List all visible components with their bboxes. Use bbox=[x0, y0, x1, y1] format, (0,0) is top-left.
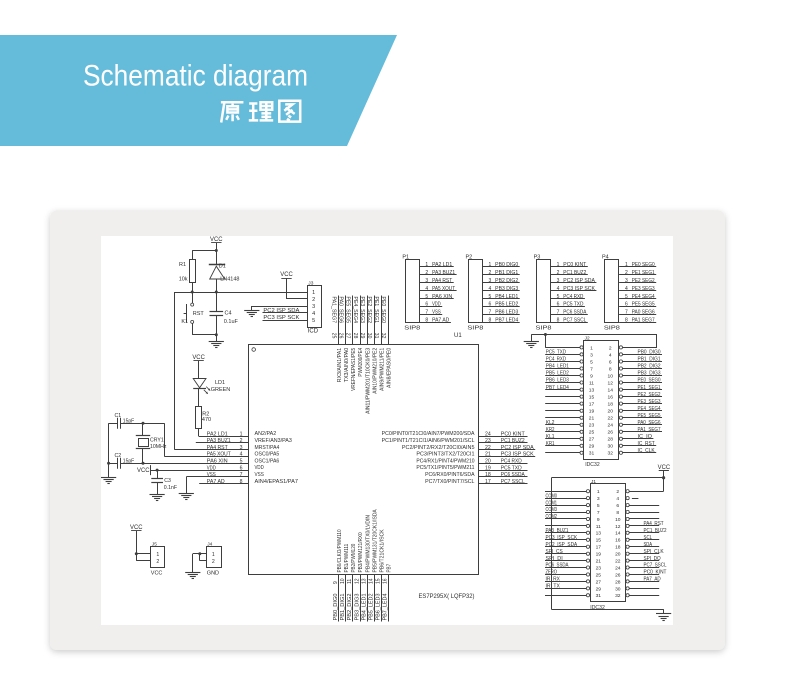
svg-text:8: 8 bbox=[625, 318, 628, 324]
svg-text:1: 1 bbox=[625, 262, 628, 268]
svg-text:5: 5 bbox=[489, 294, 492, 300]
svg-text:PC5 TXD: PC5 TXD bbox=[501, 465, 522, 471]
svg-text:3: 3 bbox=[625, 278, 628, 284]
svg-text:23: 23 bbox=[485, 438, 491, 444]
svg-text:VCC: VCC bbox=[280, 271, 293, 278]
svg-text:PC5/TX1/PINT5/PWM211: PC5/TX1/PINT5/PWM211 bbox=[416, 465, 474, 471]
svg-text:PC3 ISP SCK: PC3 ISP SCK bbox=[501, 452, 534, 458]
svg-text:4: 4 bbox=[425, 286, 428, 292]
svg-text:2: 2 bbox=[609, 345, 612, 351]
svg-text:AIN8/EPAS0/PE0: AIN8/EPAS0/PE0 bbox=[387, 348, 393, 388]
svg-text:23: 23 bbox=[596, 565, 602, 571]
svg-text:PE0_SEG0: PE0_SEG0 bbox=[638, 378, 661, 384]
svg-text:28: 28 bbox=[615, 579, 621, 585]
svg-text:LD1: LD1 bbox=[215, 380, 225, 386]
svg-text:5: 5 bbox=[625, 294, 628, 300]
svg-text:25: 25 bbox=[589, 430, 595, 436]
svg-text:29: 29 bbox=[589, 444, 595, 450]
svg-text:32: 32 bbox=[380, 333, 386, 339]
svg-text:AIN4/EPAS1/PA7: AIN4/EPAS1/PA7 bbox=[255, 479, 299, 485]
svg-text:7: 7 bbox=[597, 510, 600, 516]
svg-text:OSC0/PA5: OSC0/PA5 bbox=[255, 452, 280, 458]
svg-text:PC2_ISP_SDA: PC2_ISP_SDA bbox=[546, 542, 578, 548]
svg-text:25: 25 bbox=[331, 333, 337, 339]
svg-text:P3: P3 bbox=[534, 255, 541, 261]
svg-text:2: 2 bbox=[557, 270, 560, 276]
svg-text:12: 12 bbox=[615, 524, 621, 530]
svg-text:7: 7 bbox=[625, 310, 628, 316]
svg-text:PC1/PINT1/T21CI1/AIN6/PWM201/S: PC1/PINT1/T21CI1/AIN6/PWM201/SCL bbox=[382, 438, 475, 444]
svg-text:J2: J2 bbox=[585, 335, 590, 341]
svg-text:8: 8 bbox=[557, 318, 560, 324]
svg-text:PE0_SEG0: PE0_SEG0 bbox=[380, 297, 386, 324]
svg-text:PA3 BUZ1: PA3 BUZ1 bbox=[207, 438, 231, 444]
svg-text:18: 18 bbox=[607, 402, 613, 408]
svg-text:5: 5 bbox=[597, 503, 600, 509]
svg-text:7: 7 bbox=[240, 472, 243, 478]
svg-text:19: 19 bbox=[589, 409, 595, 415]
svg-text:22: 22 bbox=[607, 416, 613, 422]
svg-text:PA7_AD: PA7_AD bbox=[644, 577, 662, 583]
svg-text:PB0_DIG0: PB0_DIG0 bbox=[333, 593, 339, 620]
svg-text:VSS: VSS bbox=[432, 310, 441, 316]
svg-text:3: 3 bbox=[312, 304, 315, 310]
svg-text:10: 10 bbox=[607, 373, 613, 379]
svg-text:6: 6 bbox=[489, 302, 492, 308]
svg-text:C2: C2 bbox=[115, 453, 122, 459]
svg-text:22: 22 bbox=[615, 559, 621, 565]
svg-text:2: 2 bbox=[616, 489, 619, 495]
svg-text:1: 1 bbox=[597, 489, 600, 495]
svg-text:4: 4 bbox=[240, 452, 243, 458]
svg-text:PB3 DIG3: PB3 DIG3 bbox=[495, 286, 518, 292]
svg-text:19: 19 bbox=[596, 552, 602, 558]
svg-text:6: 6 bbox=[625, 302, 628, 308]
svg-text:8: 8 bbox=[609, 366, 612, 372]
svg-text:PB5/PWM131/T20CK1/ISDA: PB5/PWM131/T20CK1/ISDA bbox=[372, 509, 378, 573]
svg-text:26: 26 bbox=[615, 572, 621, 578]
svg-text:15: 15 bbox=[589, 395, 595, 401]
svg-text:IR_TX: IR_TX bbox=[546, 584, 561, 590]
svg-text:VREF/AN3/PA3: VREF/AN3/PA3 bbox=[255, 438, 292, 444]
svg-text:PC3/PINT3/TX2/T20CI1: PC3/PINT3/TX2/T20CI1 bbox=[416, 452, 474, 458]
svg-text:PC2 ISP SDA: PC2 ISP SDA bbox=[263, 308, 299, 314]
svg-text:CRY1: CRY1 bbox=[150, 437, 164, 443]
svg-text:470: 470 bbox=[202, 417, 211, 423]
svg-text:3: 3 bbox=[489, 278, 492, 284]
svg-text:4: 4 bbox=[489, 286, 492, 292]
svg-text:30: 30 bbox=[366, 333, 372, 339]
svg-text:24: 24 bbox=[485, 431, 491, 437]
svg-text:PB1 DIG1: PB1 DIG1 bbox=[495, 270, 518, 276]
svg-text:2: 2 bbox=[489, 270, 492, 276]
svg-text:SIP8: SIP8 bbox=[404, 326, 420, 332]
svg-text:PC7 SSCL: PC7 SSCL bbox=[501, 479, 525, 485]
svg-text:SIP8: SIP8 bbox=[536, 326, 552, 332]
svg-text:PE2_SEG2: PE2_SEG2 bbox=[638, 392, 661, 398]
svg-text:1: 1 bbox=[212, 552, 215, 558]
svg-text:PE5 SEG5: PE5 SEG5 bbox=[632, 302, 655, 308]
svg-text:15: 15 bbox=[376, 578, 382, 584]
svg-text:PC4 RXD: PC4 RXD bbox=[563, 294, 583, 300]
svg-text:PA0_SEG6: PA0_SEG6 bbox=[338, 297, 344, 324]
svg-text:PE5_SEG5: PE5_SEG5 bbox=[638, 413, 661, 419]
svg-text:28: 28 bbox=[352, 333, 358, 339]
svg-text:D1: D1 bbox=[219, 263, 226, 269]
svg-text:27: 27 bbox=[596, 579, 602, 585]
svg-text:PA1 SEG7: PA1 SEG7 bbox=[632, 318, 655, 324]
svg-text:GND: GND bbox=[207, 571, 219, 577]
svg-text:SIP8: SIP8 bbox=[467, 326, 483, 332]
svg-text:26: 26 bbox=[607, 430, 613, 436]
svg-text:MRST/PA4: MRST/PA4 bbox=[255, 445, 280, 451]
svg-text:14: 14 bbox=[369, 578, 375, 584]
svg-text:PB1/PWM111: PB1/PWM111 bbox=[344, 544, 350, 573]
svg-text:PC1 BUZ2: PC1 BUZ2 bbox=[563, 270, 586, 276]
svg-text:2: 2 bbox=[425, 270, 428, 276]
svg-text:VREFN/EPAS1/PE5: VREFN/EPAS1/PE5 bbox=[351, 348, 357, 391]
svg-text:PE2 SEG2: PE2 SEG2 bbox=[632, 278, 655, 284]
svg-text:PWM200/PE4: PWM200/PE4 bbox=[358, 348, 364, 377]
svg-text:C4: C4 bbox=[225, 311, 232, 317]
svg-text:10MHz: 10MHz bbox=[150, 444, 167, 450]
svg-text:2: 2 bbox=[312, 297, 315, 303]
svg-text:R1: R1 bbox=[179, 262, 186, 268]
svg-text:26: 26 bbox=[338, 333, 344, 339]
svg-text:J5: J5 bbox=[152, 541, 157, 547]
svg-text:2: 2 bbox=[156, 559, 159, 565]
svg-text:PC6/RX0/PINT6/SDA: PC6/RX0/PINT6/SDA bbox=[425, 472, 475, 478]
svg-text:8: 8 bbox=[489, 318, 492, 324]
svg-text:PB2_DIG2: PB2_DIG2 bbox=[347, 593, 353, 620]
svg-text:23: 23 bbox=[589, 423, 595, 429]
svg-text:24: 24 bbox=[615, 565, 621, 571]
svg-text:AIN10/PWM210/PE2: AIN10/PWM210/PE2 bbox=[372, 348, 378, 394]
svg-text:16: 16 bbox=[615, 538, 621, 544]
svg-text:21: 21 bbox=[589, 416, 595, 422]
svg-text:PB4 LED1: PB4 LED1 bbox=[495, 294, 518, 300]
svg-text:J3: J3 bbox=[308, 280, 313, 286]
svg-text:K1: K1 bbox=[181, 319, 188, 325]
svg-text:VDD: VDD bbox=[207, 465, 216, 471]
svg-text:2: 2 bbox=[240, 438, 243, 444]
svg-text:2: 2 bbox=[212, 559, 215, 565]
svg-text:PC3 ISP SCK: PC3 ISP SCK bbox=[263, 315, 299, 321]
svg-text:ICD: ICD bbox=[308, 329, 319, 335]
svg-text:PA5 XOUT: PA5 XOUT bbox=[207, 452, 232, 458]
svg-text:17: 17 bbox=[485, 479, 491, 485]
svg-text:VDD: VDD bbox=[255, 465, 264, 471]
svg-text:PB0/CLKO/PWM110: PB0/CLKO/PWM110 bbox=[337, 529, 343, 572]
svg-text:VCC: VCC bbox=[658, 464, 671, 471]
svg-text:PA3_BUZ1: PA3_BUZ1 bbox=[546, 528, 569, 534]
svg-text:13: 13 bbox=[361, 578, 367, 584]
svg-text:PB6_LED3: PB6_LED3 bbox=[376, 593, 382, 620]
svg-text:PE5_SEG5: PE5_SEG5 bbox=[345, 297, 351, 324]
svg-text:RST: RST bbox=[193, 311, 205, 317]
svg-text:PA4_RST: PA4_RST bbox=[644, 521, 664, 527]
svg-text:PB3_DIG3: PB3_DIG3 bbox=[638, 371, 661, 377]
svg-text:IC_IO: IC_IO bbox=[638, 434, 653, 440]
svg-text:J1: J1 bbox=[591, 479, 596, 485]
svg-text:VCC: VCC bbox=[151, 571, 163, 577]
svg-text:20: 20 bbox=[485, 459, 491, 465]
svg-text:KL2: KL2 bbox=[546, 420, 555, 426]
svg-text:SCL: SCL bbox=[644, 535, 653, 541]
svg-text:PC6_SSDA: PC6_SSDA bbox=[546, 563, 570, 569]
svg-text:2: 2 bbox=[625, 270, 628, 276]
svg-text:TX3/AIN0/PA0: TX3/AIN0/PA0 bbox=[344, 348, 350, 383]
svg-text:14: 14 bbox=[615, 531, 621, 537]
svg-text:PB6/T21CK1/ISCK: PB6/T21CK1/ISCK bbox=[379, 529, 385, 573]
svg-text:PC2 ISP SDA: PC2 ISP SDA bbox=[501, 445, 534, 451]
svg-text:6: 6 bbox=[609, 359, 612, 365]
svg-text:P2: P2 bbox=[466, 255, 473, 261]
svg-text:11: 11 bbox=[347, 579, 353, 584]
svg-text:3: 3 bbox=[590, 352, 593, 358]
svg-text:PC4_RXD: PC4_RXD bbox=[546, 357, 566, 363]
svg-text:12: 12 bbox=[607, 380, 613, 386]
svg-text:PE3 SEG3: PE3 SEG3 bbox=[632, 286, 655, 292]
svg-text:3: 3 bbox=[557, 278, 560, 284]
svg-text:SIP8: SIP8 bbox=[604, 326, 620, 332]
svg-text:31: 31 bbox=[373, 333, 379, 339]
svg-text:6: 6 bbox=[425, 302, 428, 308]
svg-text:PA2 LD1: PA2 LD1 bbox=[207, 431, 228, 437]
svg-text:PC0_KINT: PC0_KINT bbox=[644, 570, 667, 576]
svg-text:PE3_SEG3: PE3_SEG3 bbox=[359, 297, 365, 324]
svg-text:31: 31 bbox=[596, 593, 602, 599]
svg-text:14: 14 bbox=[607, 388, 613, 394]
svg-text:PE4_SEG4: PE4_SEG4 bbox=[638, 406, 661, 412]
svg-text:8: 8 bbox=[425, 318, 428, 324]
svg-text:PB3/PWM121/RX0: PB3/PWM121/RX0 bbox=[358, 532, 364, 572]
svg-text:J4: J4 bbox=[207, 541, 212, 547]
svg-text:PC0/PINT0/T21CI0/AIN7/PWM200/S: PC0/PINT0/T21CI0/AIN7/PWM200/SDA bbox=[382, 431, 475, 437]
svg-text:27: 27 bbox=[345, 333, 351, 339]
svg-text:PC0 KINT: PC0 KINT bbox=[563, 262, 586, 268]
svg-text:SPI_DI: SPI_DI bbox=[546, 556, 563, 562]
svg-text:AN2/PA2: AN2/PA2 bbox=[255, 431, 277, 437]
svg-text:C3: C3 bbox=[164, 478, 171, 484]
svg-text:28: 28 bbox=[607, 437, 613, 443]
svg-text:10: 10 bbox=[615, 517, 621, 523]
svg-text:3: 3 bbox=[240, 445, 243, 451]
svg-text:1: 1 bbox=[425, 262, 428, 268]
svg-text:Schematic diagram: Schematic diagram bbox=[83, 60, 308, 93]
svg-text:PE2_SEG2: PE2_SEG2 bbox=[366, 297, 372, 324]
svg-text:OSC1/PA6: OSC1/PA6 bbox=[255, 458, 280, 464]
svg-text:RX3/AIN1/PA1: RX3/AIN1/PA1 bbox=[337, 348, 343, 383]
svg-text:SPI_CLK: SPI_CLK bbox=[644, 549, 665, 555]
svg-text:PB7 LED4: PB7 LED4 bbox=[495, 318, 518, 324]
svg-text:0.1nF: 0.1nF bbox=[164, 485, 177, 491]
svg-text:7: 7 bbox=[590, 366, 593, 372]
svg-text:PA1_SEG7: PA1_SEG7 bbox=[331, 297, 337, 324]
svg-text:8: 8 bbox=[616, 510, 619, 516]
svg-text:4: 4 bbox=[557, 286, 560, 292]
svg-text:12: 12 bbox=[354, 578, 360, 584]
svg-text:PC7/TX0/PINT7/SCL: PC7/TX0/PINT7/SCL bbox=[425, 479, 475, 485]
svg-text:10: 10 bbox=[340, 578, 346, 584]
svg-text:1: 1 bbox=[489, 262, 492, 268]
svg-text:PE3_SEG3: PE3_SEG3 bbox=[638, 399, 661, 405]
svg-text:PB4_LED1: PB4_LED1 bbox=[546, 364, 569, 370]
svg-text:17: 17 bbox=[589, 402, 595, 408]
svg-text:13: 13 bbox=[589, 388, 595, 394]
svg-text:ES7P295X( LQFP32): ES7P295X( LQFP32) bbox=[419, 593, 475, 600]
svg-text:6: 6 bbox=[557, 302, 560, 308]
svg-text:24: 24 bbox=[607, 423, 613, 429]
svg-text:VSS: VSS bbox=[255, 472, 265, 478]
svg-text:PE4 SEG4: PE4 SEG4 bbox=[632, 294, 655, 300]
svg-text:KR1: KR1 bbox=[546, 441, 555, 447]
svg-text:22: 22 bbox=[485, 445, 491, 451]
svg-text:PC3 ISP SCK: PC3 ISP SCK bbox=[563, 286, 595, 292]
svg-text:PB4_LED1: PB4_LED1 bbox=[361, 593, 367, 620]
svg-text:VCC: VCC bbox=[137, 467, 150, 474]
svg-text:GREEN: GREEN bbox=[211, 387, 231, 393]
svg-text:PE1_SEG1: PE1_SEG1 bbox=[373, 297, 379, 324]
svg-text:6: 6 bbox=[616, 503, 619, 509]
svg-text:PC5_TXD: PC5_TXD bbox=[546, 350, 566, 356]
svg-text:LN4148: LN4148 bbox=[220, 276, 239, 282]
svg-text:PE1 SEG1: PE1 SEG1 bbox=[632, 270, 655, 276]
svg-text:5: 5 bbox=[312, 318, 315, 324]
svg-text:5: 5 bbox=[557, 294, 560, 300]
svg-text:PB5_LED2: PB5_LED2 bbox=[546, 371, 569, 377]
svg-text:11: 11 bbox=[596, 524, 601, 530]
svg-text:25: 25 bbox=[596, 572, 602, 578]
svg-text:PB5_LED2: PB5_LED2 bbox=[369, 593, 375, 620]
svg-text:PE1_SEG1: PE1_SEG1 bbox=[638, 385, 661, 391]
svg-text:8: 8 bbox=[240, 479, 243, 485]
svg-text:KR2: KR2 bbox=[546, 427, 555, 433]
svg-text:19: 19 bbox=[485, 465, 491, 471]
svg-text:18: 18 bbox=[615, 545, 621, 551]
svg-text:PA0_SEG6: PA0_SEG6 bbox=[638, 420, 661, 426]
svg-text:PE0 SEG0: PE0 SEG0 bbox=[632, 262, 655, 268]
svg-text:20: 20 bbox=[607, 409, 613, 415]
svg-text:PB3_DIG3: PB3_DIG3 bbox=[354, 593, 360, 620]
svg-text:PC6 SSDA: PC6 SSDA bbox=[563, 310, 587, 316]
svg-text:IC_CLK: IC_CLK bbox=[638, 448, 656, 454]
svg-text:PC3_ISP_SCK: PC3_ISP_SCK bbox=[546, 535, 578, 541]
svg-text:PC0 KINT: PC0 KINT bbox=[501, 431, 526, 437]
svg-text:4: 4 bbox=[616, 496, 619, 502]
svg-text:PB6 LED3: PB6 LED3 bbox=[495, 310, 518, 316]
svg-text:29: 29 bbox=[359, 333, 365, 339]
svg-text:U1: U1 bbox=[454, 333, 462, 339]
svg-text:1: 1 bbox=[312, 290, 315, 296]
svg-text:3: 3 bbox=[425, 278, 428, 284]
svg-text:IR_RX: IR_RX bbox=[546, 577, 561, 583]
svg-text:17: 17 bbox=[596, 545, 602, 551]
svg-text:PA4 RST: PA4 RST bbox=[432, 278, 452, 284]
svg-text:13: 13 bbox=[596, 531, 602, 537]
svg-text:PA7 AD: PA7 AD bbox=[207, 479, 225, 485]
svg-text:PA2 LD1: PA2 LD1 bbox=[432, 262, 452, 268]
svg-text:PB0_DIG0: PB0_DIG0 bbox=[638, 350, 661, 356]
svg-text:PB1_DIG1: PB1_DIG1 bbox=[340, 593, 346, 620]
svg-text:PC6 SSDA: PC6 SSDA bbox=[501, 472, 525, 478]
svg-text:PA6 XIN: PA6 XIN bbox=[432, 294, 453, 300]
svg-text:PB1_DIG1: PB1_DIG1 bbox=[638, 357, 661, 363]
svg-text:PB6_LED3: PB6_LED3 bbox=[546, 378, 569, 384]
svg-text:21: 21 bbox=[596, 559, 602, 565]
svg-text:16: 16 bbox=[383, 578, 389, 584]
svg-text:21: 21 bbox=[485, 452, 491, 458]
svg-text:P1: P1 bbox=[402, 255, 409, 261]
svg-text:PB2_DIG2: PB2_DIG2 bbox=[638, 364, 661, 370]
svg-text:3: 3 bbox=[597, 496, 600, 502]
svg-text:PA7 AD: PA7 AD bbox=[432, 318, 450, 324]
svg-text:PA4 RST: PA4 RST bbox=[207, 445, 229, 451]
svg-text:PC1_BUZ2: PC1_BUZ2 bbox=[644, 528, 667, 534]
svg-text:PA6 XIN: PA6 XIN bbox=[207, 459, 228, 465]
svg-text:PC2 ISP SDA: PC2 ISP SDA bbox=[563, 278, 595, 284]
svg-text:1: 1 bbox=[240, 431, 243, 437]
svg-text:PE4_SEG4: PE4_SEG4 bbox=[352, 297, 358, 324]
svg-text:1: 1 bbox=[590, 345, 593, 351]
svg-text:PC1 BUZ2: PC1 BUZ2 bbox=[501, 438, 525, 444]
svg-text:VDD: VDD bbox=[432, 302, 441, 308]
svg-text:0.1uF: 0.1uF bbox=[224, 319, 239, 325]
svg-text:SDA: SDA bbox=[644, 542, 653, 548]
svg-text:PB7_LED4: PB7_LED4 bbox=[546, 385, 569, 391]
svg-text:6: 6 bbox=[240, 465, 243, 471]
svg-text:PC4/RX1/PINT4/PWM210: PC4/RX1/PINT4/PWM210 bbox=[416, 458, 474, 464]
svg-text:IC_RST: IC_RST bbox=[638, 441, 655, 447]
svg-text:27: 27 bbox=[589, 437, 595, 443]
svg-text:PB2 DIG2: PB2 DIG2 bbox=[495, 278, 518, 284]
svg-text:31: 31 bbox=[589, 451, 595, 457]
svg-text:4: 4 bbox=[625, 286, 628, 292]
svg-text:SPI_DO: SPI_DO bbox=[644, 556, 661, 562]
svg-text:1: 1 bbox=[557, 262, 560, 268]
svg-text:9: 9 bbox=[590, 373, 593, 379]
svg-text:18: 18 bbox=[485, 472, 491, 478]
svg-text:AIN9/PWM211/PE1: AIN9/PWM211/PE1 bbox=[379, 348, 385, 391]
svg-text:PA1_SEG7: PA1_SEG7 bbox=[638, 427, 661, 433]
svg-text:PC2/PINT2/RX2/T20CI0/AIN5: PC2/PINT2/RX2/T20CI0/AIN5 bbox=[402, 445, 475, 451]
svg-text:PB2/PWM120: PB2/PWM120 bbox=[351, 544, 357, 573]
svg-text:5: 5 bbox=[425, 294, 428, 300]
svg-text:20: 20 bbox=[615, 552, 621, 558]
svg-text:7: 7 bbox=[557, 310, 560, 316]
svg-text:PA0 SEG6: PA0 SEG6 bbox=[632, 310, 655, 316]
svg-text:C1: C1 bbox=[115, 413, 122, 419]
svg-text:9: 9 bbox=[333, 581, 339, 584]
svg-text:SPI_CS: SPI_CS bbox=[546, 549, 564, 555]
svg-text:4: 4 bbox=[312, 311, 315, 317]
svg-text:PC4 RXD: PC4 RXD bbox=[501, 459, 522, 465]
svg-text:16: 16 bbox=[607, 395, 613, 401]
svg-text:IDC32: IDC32 bbox=[585, 462, 600, 468]
svg-text:10k: 10k bbox=[179, 277, 188, 283]
svg-text:32: 32 bbox=[607, 451, 613, 457]
svg-text:VSS: VSS bbox=[207, 472, 216, 478]
svg-text:PA3 BUZ1: PA3 BUZ1 bbox=[432, 270, 455, 276]
svg-text:30: 30 bbox=[607, 444, 613, 450]
svg-text:P4: P4 bbox=[602, 255, 609, 261]
svg-text:4: 4 bbox=[609, 352, 612, 358]
svg-text:5: 5 bbox=[590, 359, 593, 365]
svg-text:1: 1 bbox=[156, 552, 159, 558]
svg-text:PC5 TXD: PC5 TXD bbox=[563, 302, 583, 308]
svg-text:5: 5 bbox=[240, 459, 243, 465]
svg-text:PB5 LED2: PB5 LED2 bbox=[495, 302, 518, 308]
